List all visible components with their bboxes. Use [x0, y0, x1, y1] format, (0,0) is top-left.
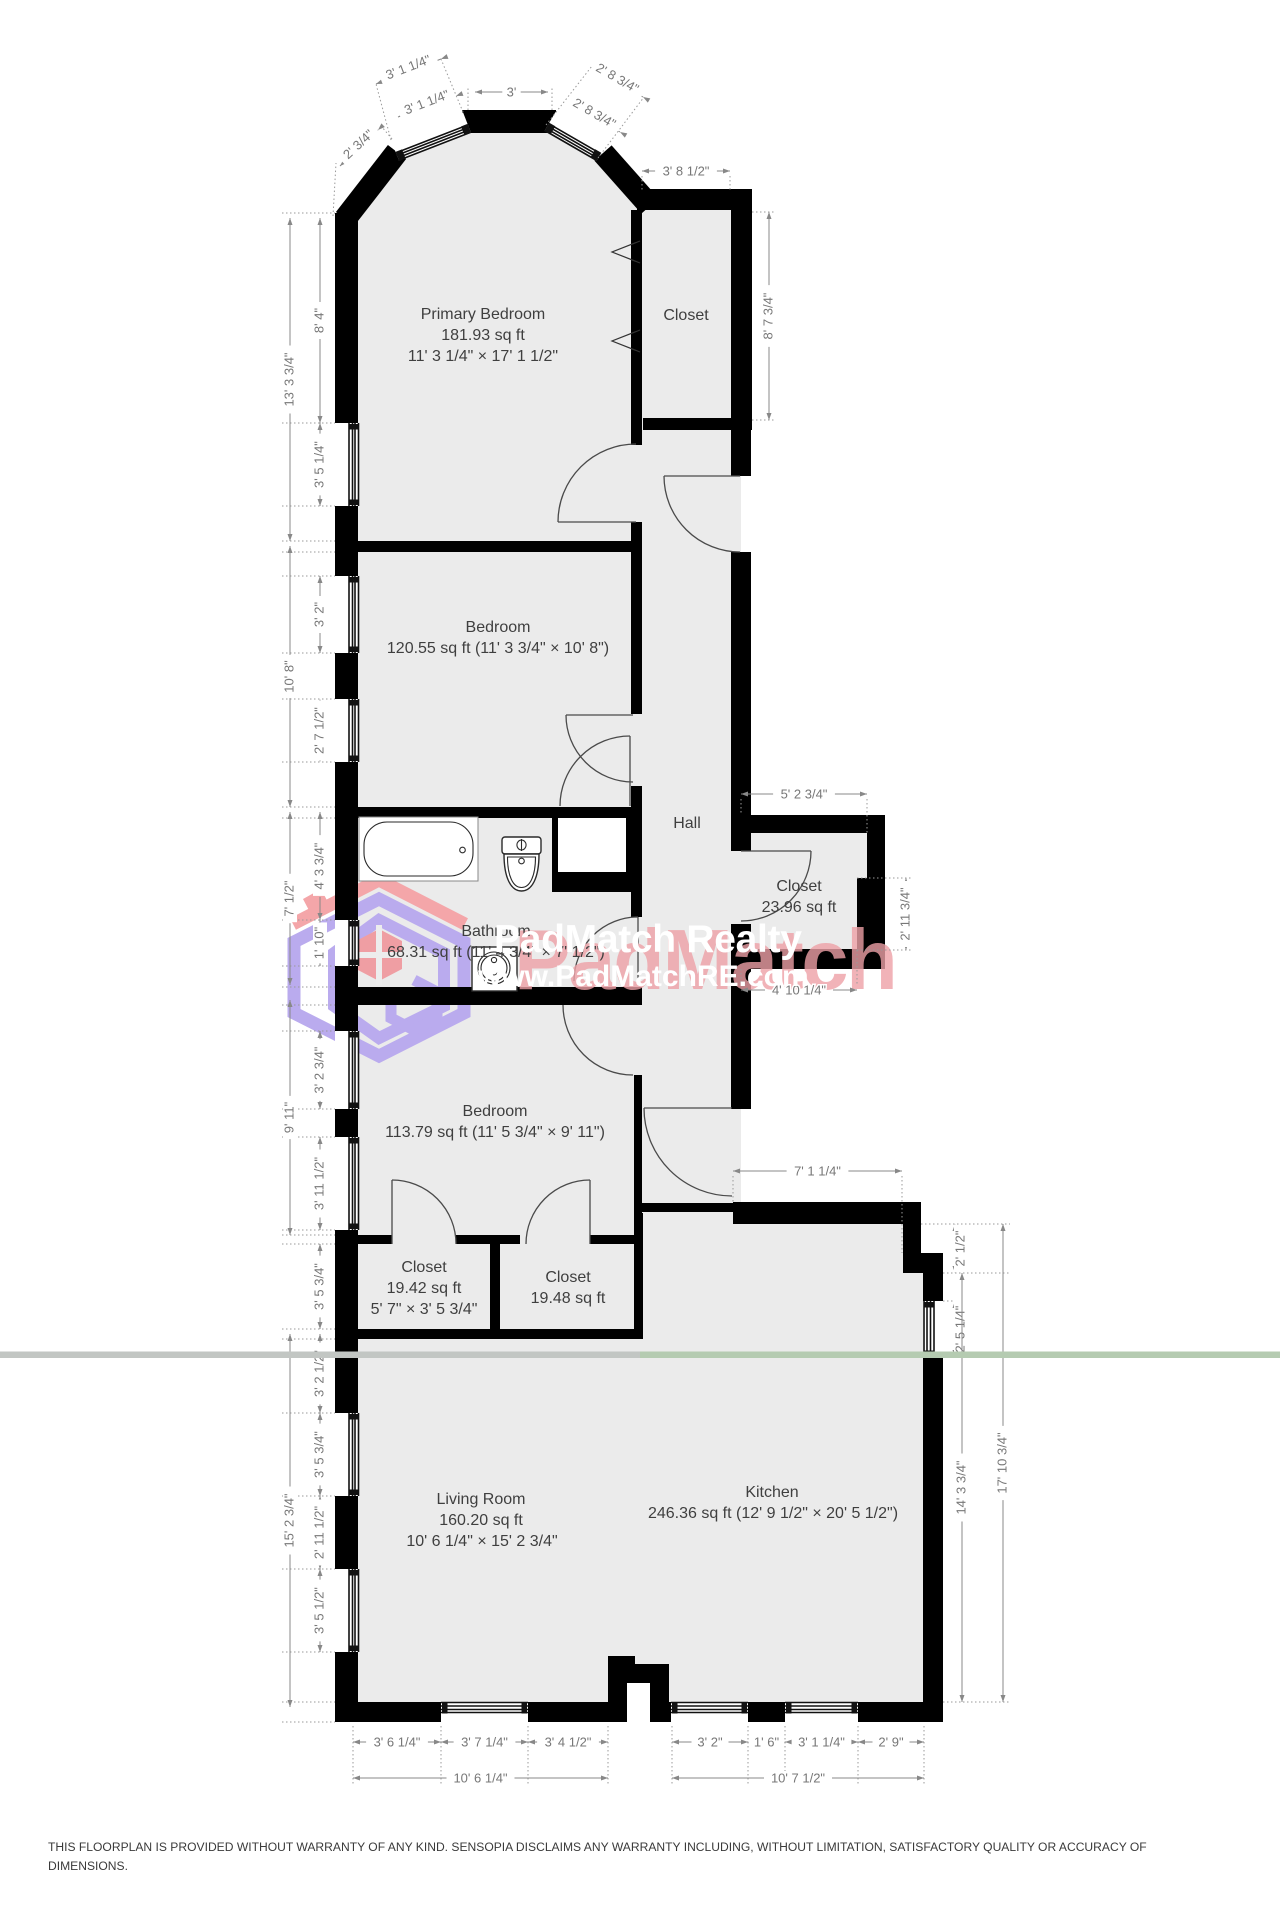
svg-text:2' 9": 2' 9"	[878, 1735, 904, 1750]
svg-text:7' 1 1/4": 7' 1 1/4"	[794, 1164, 841, 1179]
svg-text:Bedroom: Bedroom	[466, 619, 531, 636]
svg-text:160.20 sq ft: 160.20 sq ft	[439, 1512, 523, 1529]
svg-text:5' 2 3/4": 5' 2 3/4"	[781, 787, 828, 802]
svg-text:10' 7 1/2": 10' 7 1/2"	[771, 1771, 825, 1786]
svg-text:4' 3 3/4": 4' 3 3/4"	[311, 842, 326, 889]
svg-text:10' 8": 10' 8"	[281, 660, 296, 693]
svg-text:THIS FLOORPLAN IS PROVIDED WIT: THIS FLOORPLAN IS PROVIDED WITHOUT WARRA…	[48, 1840, 1147, 1854]
svg-text:17' 10 3/4": 17' 10 3/4"	[994, 1432, 1009, 1494]
svg-text:5' 7" × 3' 5 3/4": 5' 7" × 3' 5 3/4"	[371, 1301, 478, 1318]
svg-text:PadMatch Realty: PadMatch Realty	[494, 918, 802, 961]
svg-text:Closet: Closet	[401, 1259, 447, 1276]
svg-text:2' 5 1/4": 2' 5 1/4"	[952, 1305, 967, 1352]
svg-text:13' 3 3/4": 13' 3 3/4"	[281, 352, 296, 406]
svg-text:3' 2 3/4": 3' 2 3/4"	[311, 1046, 326, 1093]
svg-text:Closet: Closet	[663, 307, 709, 324]
svg-text:DIMENSIONS.: DIMENSIONS.	[48, 1859, 128, 1873]
svg-text:10' 6 1/4" × 15' 2 3/4": 10' 6 1/4" × 15' 2 3/4"	[406, 1533, 557, 1550]
svg-text:Living Room: Living Room	[437, 1491, 526, 1508]
svg-text:3' 11 1/2": 3' 11 1/2"	[311, 1157, 326, 1211]
svg-text:3': 3'	[507, 85, 517, 100]
svg-text:Closet: Closet	[776, 878, 822, 895]
svg-text:14' 3 3/4": 14' 3 3/4"	[953, 1460, 968, 1514]
svg-text:19.42 sq ft: 19.42 sq ft	[387, 1280, 462, 1297]
svg-text:Primary Bedroom: Primary Bedroom	[421, 306, 545, 323]
svg-text:3' 5 3/4": 3' 5 3/4"	[311, 1431, 326, 1478]
svg-text:3' 2": 3' 2"	[697, 1735, 723, 1750]
svg-text:3' 5 3/4": 3' 5 3/4"	[311, 1263, 326, 1310]
svg-text:120.55 sq ft (11' 3 3/4" × 10': 120.55 sq ft (11' 3 3/4" × 10' 8")	[387, 640, 609, 657]
svg-text:181.93 sq ft: 181.93 sq ft	[441, 327, 525, 344]
svg-text:3' 2": 3' 2"	[311, 602, 326, 628]
svg-text:7' 1/2": 7' 1/2"	[281, 880, 296, 916]
svg-text:Kitchen: Kitchen	[745, 1484, 798, 1501]
svg-text:3' 5 1/4": 3' 5 1/4"	[311, 441, 326, 488]
svg-text:2' 11 3/4": 2' 11 3/4"	[897, 887, 912, 941]
svg-text:3' 7 1/4": 3' 7 1/4"	[461, 1735, 508, 1750]
svg-text:11' 3 1/4" × 17' 1 1/2": 11' 3 1/4" × 17' 1 1/2"	[408, 348, 558, 365]
svg-text:10' 6 1/4": 10' 6 1/4"	[453, 1771, 507, 1786]
svg-text:2' 1/2": 2' 1/2"	[952, 1230, 967, 1266]
svg-text:9' 11": 9' 11"	[281, 1101, 296, 1133]
svg-text:8' 7 3/4": 8' 7 3/4"	[760, 292, 775, 339]
svg-text:3' 4 1/2": 3' 4 1/2"	[545, 1735, 592, 1750]
svg-text:1' 10": 1' 10"	[311, 926, 326, 959]
svg-text:Hall: Hall	[673, 815, 701, 832]
svg-text:15' 2 3/4": 15' 2 3/4"	[281, 1493, 296, 1547]
svg-text:113.79 sq ft (11' 5 3/4" × 9': 113.79 sq ft (11' 5 3/4" × 9' 11")	[385, 1124, 605, 1141]
svg-text:3' 5 1/2": 3' 5 1/2"	[311, 1587, 326, 1634]
svg-text:Bedroom: Bedroom	[463, 1103, 528, 1120]
svg-text:1' 6": 1' 6"	[754, 1735, 780, 1750]
svg-text:3' 8 1/2": 3' 8 1/2"	[663, 164, 710, 179]
svg-text:www.PadMatchRE.com: www.PadMatchRE.com	[477, 960, 809, 993]
svg-text:Closet: Closet	[545, 1269, 591, 1286]
svg-text:3' 6 1/4": 3' 6 1/4"	[374, 1735, 421, 1750]
svg-text:19.48 sq ft: 19.48 sq ft	[531, 1290, 606, 1307]
svg-text:246.36 sq ft (12' 9 1/2" × 20': 246.36 sq ft (12' 9 1/2" × 20' 5 1/2")	[648, 1505, 898, 1522]
svg-text:2' 11 1/2": 2' 11 1/2"	[311, 1506, 326, 1560]
svg-text:3' 1 1/4": 3' 1 1/4"	[798, 1735, 845, 1750]
svg-text:2' 7 1/2": 2' 7 1/2"	[311, 707, 326, 754]
svg-text:23.96 sq ft: 23.96 sq ft	[762, 899, 837, 916]
svg-text:8' 4": 8' 4"	[311, 308, 326, 334]
